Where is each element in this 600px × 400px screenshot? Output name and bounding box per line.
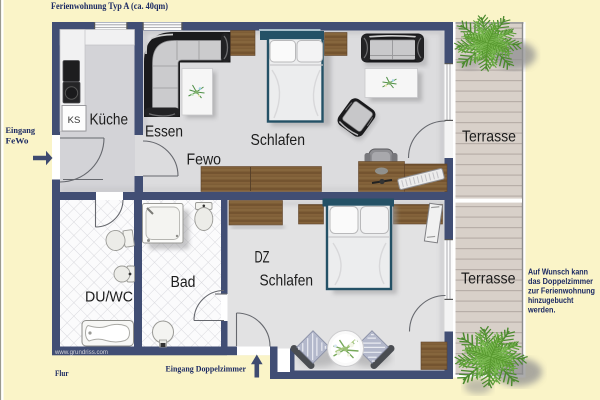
svg-text:Flur: Flur [55, 368, 69, 378]
svg-text:hinzugebucht: hinzugebucht [528, 295, 574, 305]
svg-text:Auf Wunsch kann: Auf Wunsch kann [528, 267, 588, 277]
svg-text:Ferienwohnung Typ A (ca. 40qm): Ferienwohnung Typ A (ca. 40qm) [51, 1, 168, 11]
svg-text:Fewo: Fewo [187, 152, 222, 169]
svg-text:FeWo: FeWo [6, 136, 30, 146]
svg-text:das Doppelzimmer: das Doppelzimmer [528, 276, 594, 286]
svg-text:DZ: DZ [255, 248, 270, 267]
svg-text:DU/WC: DU/WC [85, 290, 133, 306]
svg-text:Essen: Essen [145, 124, 183, 141]
svg-text:werden.: werden. [527, 305, 555, 315]
svg-text:Schlafen: Schlafen [251, 132, 306, 149]
svg-text:Bad: Bad [171, 274, 196, 291]
svg-text:zur Ferienwohnung: zur Ferienwohnung [528, 286, 595, 296]
svg-text:KS: KS [68, 115, 81, 126]
svg-text:Küche: Küche [90, 112, 129, 129]
svg-text:www.grundriss.com: www.grundriss.com [54, 349, 108, 356]
svg-text:Terrasse: Terrasse [462, 129, 516, 146]
svg-text:Terrasse: Terrasse [461, 271, 516, 288]
svg-text:Eingang: Eingang [6, 125, 36, 135]
svg-text:Eingang Doppelzimmer: Eingang Doppelzimmer [166, 364, 247, 374]
svg-text:Schlafen: Schlafen [260, 273, 314, 290]
